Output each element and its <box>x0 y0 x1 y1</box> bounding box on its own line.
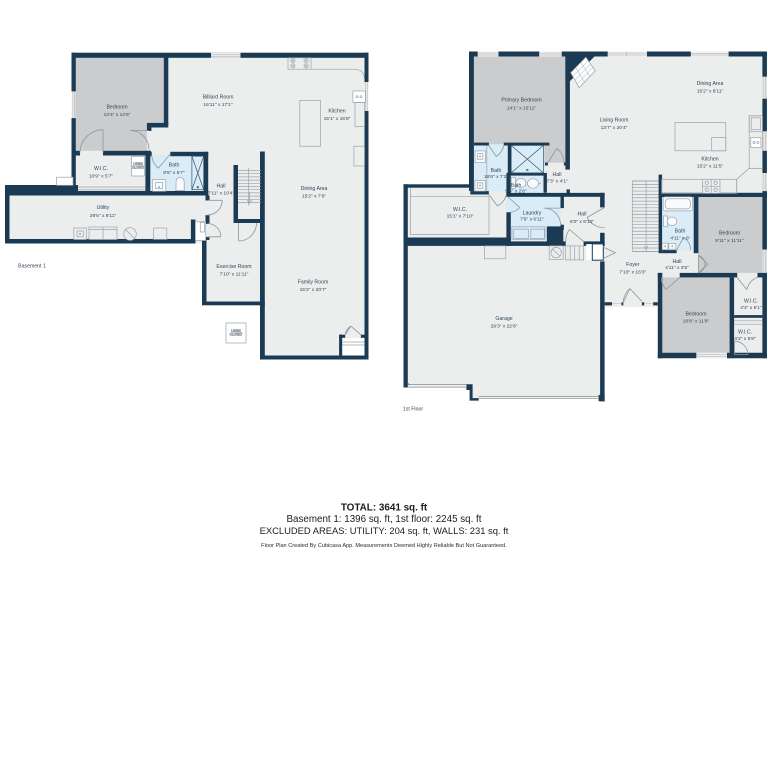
svg-text:Bedroom: Bedroom <box>719 231 740 237</box>
svg-text:Bath: Bath <box>511 183 522 189</box>
svg-text:4'2" x 5'8": 4'2" x 5'8" <box>734 336 756 342</box>
svg-text:EXCLUDED AREAS: UTILITY: 204 s: EXCLUDED AREAS: UTILITY: 204 sq. ft, WAL… <box>260 525 509 536</box>
svg-text:14'1" x 15'11": 14'1" x 15'11" <box>507 106 536 112</box>
svg-text:15'2" x 20'7": 15'2" x 20'7" <box>300 287 327 293</box>
svg-text:Foyer: Foyer <box>626 262 640 268</box>
svg-text:Family Room: Family Room <box>298 280 329 286</box>
svg-text:Garage: Garage <box>495 316 512 322</box>
svg-text:7'6" x 6'11": 7'6" x 6'11" <box>520 217 544 223</box>
svg-text:TOTAL: 3641 sq. ft: TOTAL: 3641 sq. ft <box>341 503 428 514</box>
svg-text:Billiard Room: Billiard Room <box>203 95 234 101</box>
svg-text:13'4" x 14'5": 13'4" x 14'5" <box>104 112 131 118</box>
svg-text:5'6" x 2'6": 5'6" x 2'6" <box>505 189 527 195</box>
svg-text:W.I.C.: W.I.C. <box>453 207 467 213</box>
svg-text:16'6" x 7'2": 16'6" x 7'2" <box>484 174 508 180</box>
svg-text:CLOSET: CLOSET <box>230 333 243 337</box>
svg-text:Hall: Hall <box>578 212 587 218</box>
svg-text:Bedroom: Bedroom <box>106 105 127 111</box>
svg-text:6'0" x 6'10": 6'0" x 6'10" <box>570 219 594 225</box>
svg-text:Bath: Bath <box>169 163 180 169</box>
svg-text:15'1" x 7'10": 15'1" x 7'10" <box>447 213 474 219</box>
svg-text:1st Floor: 1st Floor <box>403 407 423 413</box>
svg-text:Primary Bedroom: Primary Bedroom <box>501 98 541 104</box>
svg-text:Kitchen: Kitchen <box>701 157 718 163</box>
svg-text:Exercise Room: Exercise Room <box>216 264 251 270</box>
svg-text:16'11" x 17'1": 16'11" x 17'1" <box>203 102 232 108</box>
svg-text:29'3" x 22'8": 29'3" x 22'8" <box>491 324 518 330</box>
svg-text:7'10" x 11'11": 7'10" x 11'11" <box>220 272 249 278</box>
svg-text:4'2" x 5'1": 4'2" x 5'1" <box>740 305 762 311</box>
svg-text:W.I.C.: W.I.C. <box>94 166 108 172</box>
svg-text:Bath: Bath <box>675 228 686 234</box>
svg-text:9'11" x 11'11": 9'11" x 11'11" <box>715 238 744 244</box>
svg-text:15'2" x 11'5": 15'2" x 11'5" <box>697 163 724 169</box>
svg-text:Basement 1: 1396 sq. ft, 1st f: Basement 1: 1396 sq. ft, 1st floor: 2245… <box>287 514 482 525</box>
svg-text:Laundry: Laundry <box>523 210 542 216</box>
svg-text:Living Room: Living Room <box>600 118 629 124</box>
svg-text:4'11" x 3'5": 4'11" x 3'5" <box>665 265 689 271</box>
svg-text:Utility: Utility <box>97 205 110 211</box>
svg-text:8'5" x 5'7": 8'5" x 5'7" <box>163 170 185 176</box>
svg-text:10'8" x 11'8": 10'8" x 11'8" <box>683 319 710 325</box>
svg-text:29'5" x 8'11": 29'5" x 8'11" <box>90 213 117 219</box>
svg-text:Hall: Hall <box>553 172 562 178</box>
svg-text:Bath: Bath <box>491 168 502 174</box>
svg-text:7'10" x 16'3": 7'10" x 16'3" <box>619 269 646 275</box>
svg-text:7'11" x 10'4": 7'11" x 10'4" <box>208 191 235 197</box>
svg-text:7'3" x 4'1": 7'3" x 4'1" <box>546 178 568 184</box>
svg-text:10'9" x 5'7": 10'9" x 5'7" <box>89 173 113 179</box>
svg-text:Hall: Hall <box>217 184 226 190</box>
svg-text:4'11" x 8': 4'11" x 8' <box>670 235 689 241</box>
svg-text:Bedroom: Bedroom <box>685 312 706 318</box>
svg-text:W.I.C.: W.I.C. <box>738 330 752 336</box>
svg-text:Dining Area: Dining Area <box>697 81 724 87</box>
svg-text:Hall: Hall <box>673 259 682 265</box>
svg-text:13'7" x 20'4": 13'7" x 20'4" <box>601 125 628 131</box>
svg-text:Basement 1: Basement 1 <box>18 264 46 270</box>
svg-text:15'2" x 8'11": 15'2" x 8'11" <box>697 89 724 95</box>
svg-text:W.I.C.: W.I.C. <box>744 298 758 304</box>
svg-text:Kitchen: Kitchen <box>328 109 345 115</box>
svg-text:CLOSET: CLOSET <box>132 166 145 170</box>
svg-text:Dining Area: Dining Area <box>301 186 328 192</box>
svg-text:Floor Plan Created By Cubicasa: Floor Plan Created By Cubicasa App. Meas… <box>261 543 507 549</box>
svg-text:15'1" x 16'8": 15'1" x 16'8" <box>324 116 351 122</box>
svg-text:15'2" x 7'6": 15'2" x 7'6" <box>302 194 326 200</box>
